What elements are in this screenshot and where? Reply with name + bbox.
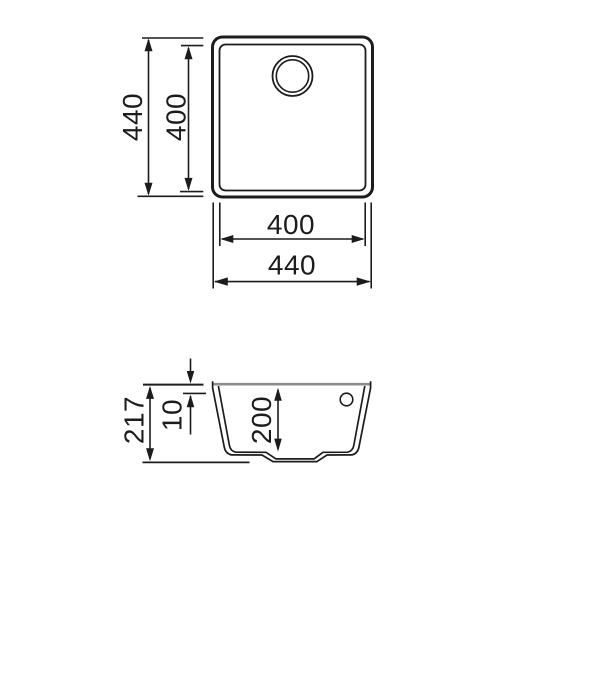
dim-bowl-depth: 200 xyxy=(246,388,282,452)
drain-circle-inner xyxy=(276,60,308,92)
sink-bowl-outline xyxy=(220,45,366,191)
dim-bowl-depth-label: 200 xyxy=(246,396,277,444)
dim-total-height-label: 217 xyxy=(118,396,149,444)
dim-overall-width-label: 440 xyxy=(268,249,316,280)
arrowhead-up xyxy=(185,46,193,59)
dim-bowl-height: 400 xyxy=(160,46,203,192)
arrowhead-right xyxy=(357,277,371,285)
arrowhead-down xyxy=(146,448,154,461)
sink-technical-drawing: 440 400 400 440 xyxy=(0,0,600,689)
arrowhead-down xyxy=(185,178,193,191)
drain-circle-outer xyxy=(273,56,313,96)
arrowhead-up xyxy=(145,38,153,51)
dim-overall-height-label: 440 xyxy=(117,93,148,141)
bowl-inner-profile xyxy=(218,386,364,459)
arrowhead-down xyxy=(145,183,153,196)
top-view xyxy=(213,37,373,197)
dim-rim-thickness-label: 10 xyxy=(156,399,187,431)
arrowhead-down xyxy=(187,371,195,384)
arrowhead-left xyxy=(220,235,233,243)
arrowhead-right xyxy=(352,235,365,243)
dim-rim-thickness: 10 xyxy=(156,359,206,435)
dim-bowl-width-label: 400 xyxy=(267,209,315,240)
dim-bowl-width: 400 xyxy=(220,203,365,247)
sink-outer-rim-outline xyxy=(213,37,373,197)
drawing-sheet: 440 400 400 440 xyxy=(0,0,600,689)
overflow-hole xyxy=(340,393,353,406)
arrowhead-left xyxy=(214,277,228,285)
dim-bowl-height-label: 400 xyxy=(160,93,191,141)
